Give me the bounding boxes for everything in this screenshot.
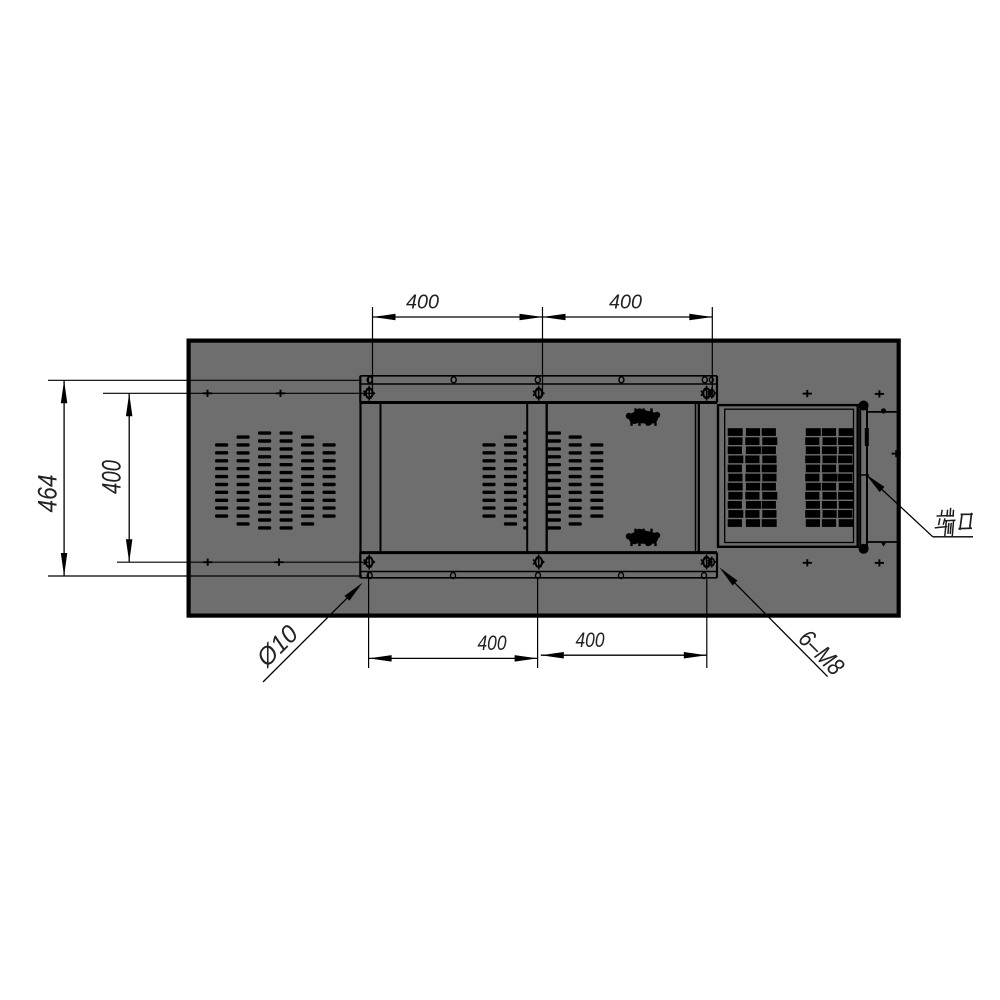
svg-text:464: 464: [33, 475, 63, 513]
svg-text:400: 400: [406, 292, 439, 314]
svg-text:400: 400: [609, 292, 642, 314]
svg-text:400: 400: [478, 632, 507, 655]
svg-text:400: 400: [97, 460, 127, 494]
svg-text:400: 400: [576, 629, 605, 652]
